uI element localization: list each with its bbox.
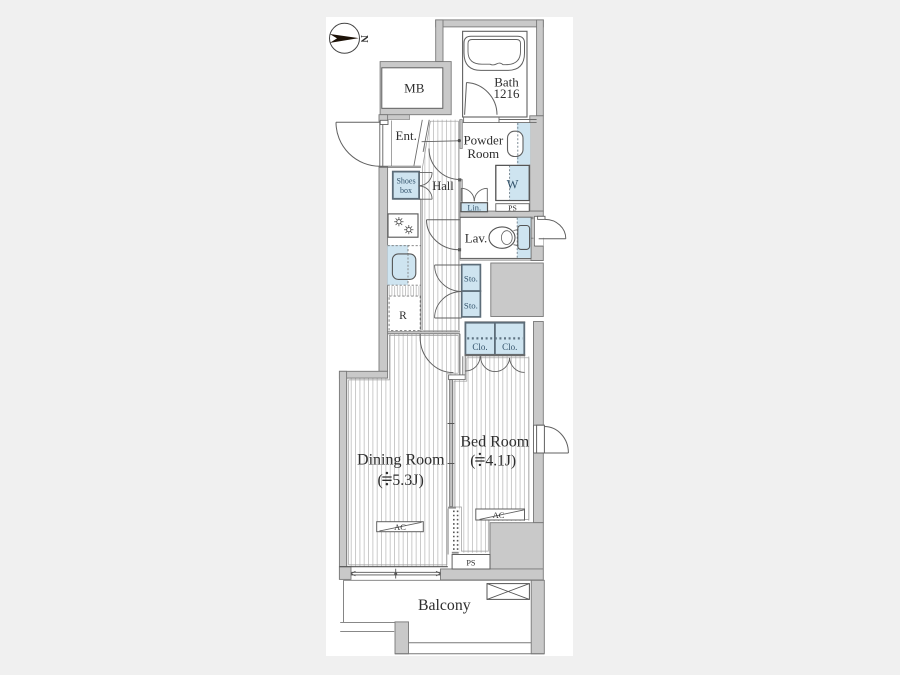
- svg-text:Clo.: Clo.: [502, 342, 517, 352]
- svg-text:4.1J): 4.1J): [486, 453, 517, 470]
- svg-text:AC: AC: [493, 510, 505, 520]
- svg-text:Bed Room: Bed Room: [460, 434, 529, 451]
- svg-text:Shoes: Shoes: [396, 176, 415, 185]
- svg-text:5.3J): 5.3J): [392, 472, 424, 489]
- svg-text:AC: AC: [394, 522, 406, 532]
- svg-text:box: box: [400, 186, 412, 195]
- svg-text:R: R: [399, 310, 407, 322]
- svg-text:PS: PS: [466, 559, 476, 568]
- svg-text:MB: MB: [404, 81, 425, 96]
- svg-text:Clo.: Clo.: [472, 342, 487, 352]
- svg-text:Lin.: Lin.: [467, 203, 481, 212]
- svg-text:PS: PS: [508, 203, 517, 212]
- svg-text:(: (: [378, 472, 383, 489]
- svg-text:W: W: [507, 178, 519, 192]
- svg-text:N: N: [358, 35, 369, 43]
- svg-text:Room: Room: [467, 146, 499, 161]
- svg-text:Ent.: Ent.: [396, 128, 417, 143]
- svg-text:Sto.: Sto.: [464, 273, 478, 283]
- svg-text:Hall: Hall: [432, 179, 454, 193]
- svg-text:Lav.: Lav.: [465, 230, 488, 245]
- svg-text:1216: 1216: [494, 86, 521, 101]
- svg-text:(: (: [470, 453, 475, 470]
- svg-text:Sto.: Sto.: [464, 301, 478, 311]
- svg-text:Balcony: Balcony: [418, 597, 471, 614]
- svg-text:Dining Room: Dining Room: [357, 451, 445, 468]
